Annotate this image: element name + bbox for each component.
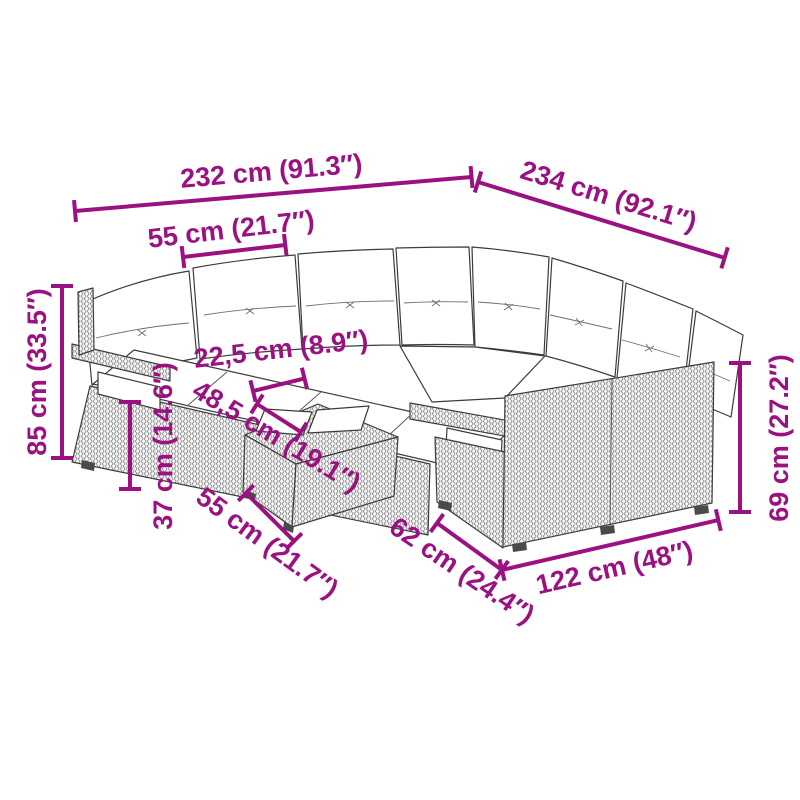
furniture-dimension-diagram: 232 cm (91.3″) 234 cm (92.1″) 55 cm (21.… — [0, 0, 800, 800]
dim-seat-height-label: 37 cm (14.6″) — [148, 362, 178, 530]
diagram-page: 232 cm (91.3″) 234 cm (92.1″) 55 cm (21.… — [0, 0, 800, 800]
sofa-back-wall-right — [503, 362, 714, 547]
back-cushion — [546, 258, 623, 377]
back-cushion — [396, 247, 474, 345]
dim-total-depth-label: 234 cm (92.1″) — [517, 155, 700, 237]
dim-back-height-label: 69 cm (27.2″) — [764, 354, 794, 522]
back-cushion — [472, 247, 549, 355]
dim-total-depth: 234 cm (92.1″) — [475, 144, 737, 269]
dim-total-height-label: 85 cm (33.5″) — [22, 288, 52, 456]
armrest-left-post — [78, 288, 94, 355]
dim-back-height: 69 cm (27.2″) — [729, 354, 794, 522]
dim-total-height: 85 cm (33.5″) — [22, 286, 73, 458]
table-tray — [308, 406, 369, 433]
dim-seat-module-width-label: 55 cm (21.7″) — [146, 205, 316, 254]
